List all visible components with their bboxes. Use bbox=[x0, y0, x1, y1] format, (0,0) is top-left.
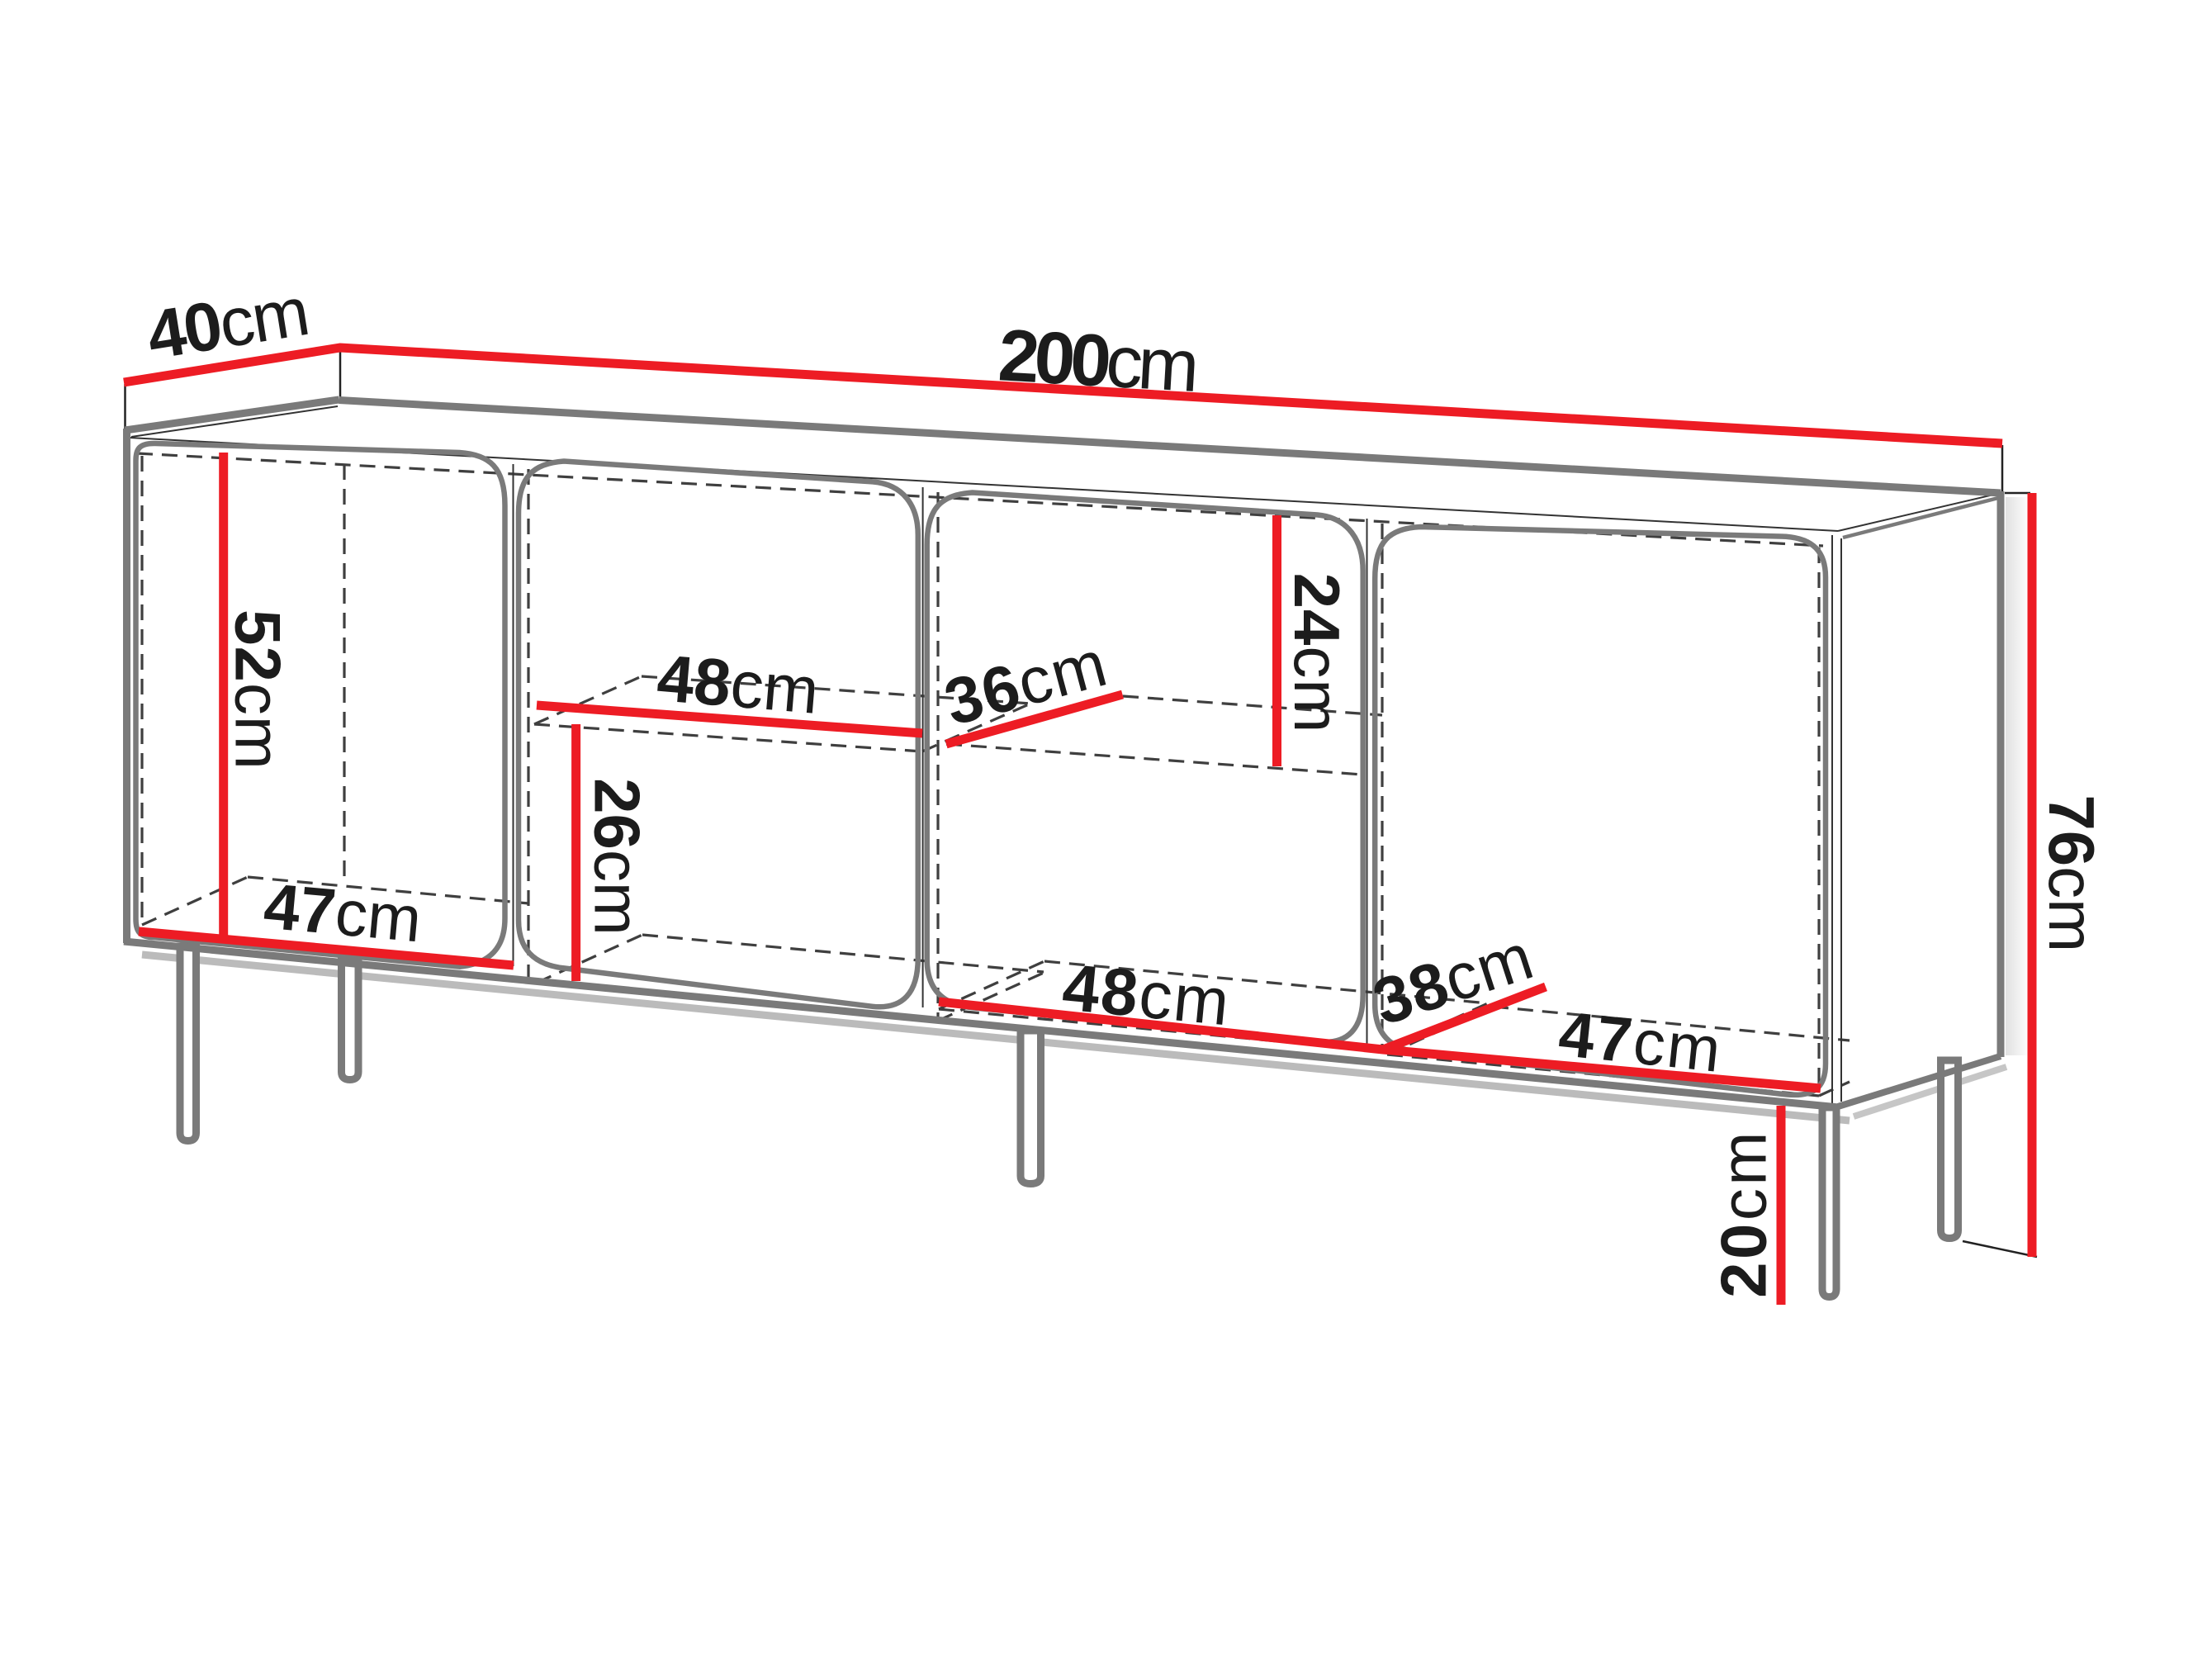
svg-text:47cm: 47cm bbox=[261, 870, 424, 956]
svg-text:52cm: 52cm bbox=[222, 609, 295, 770]
svg-text:76cm: 76cm bbox=[2035, 794, 2108, 952]
svg-text:24cm: 24cm bbox=[1281, 573, 1353, 734]
svg-text:200cm: 200cm bbox=[997, 313, 1197, 407]
svg-text:26cm: 26cm bbox=[581, 778, 654, 936]
svg-text:20cm: 20cm bbox=[1708, 1129, 1780, 1298]
svg-text:48cm: 48cm bbox=[655, 641, 822, 728]
